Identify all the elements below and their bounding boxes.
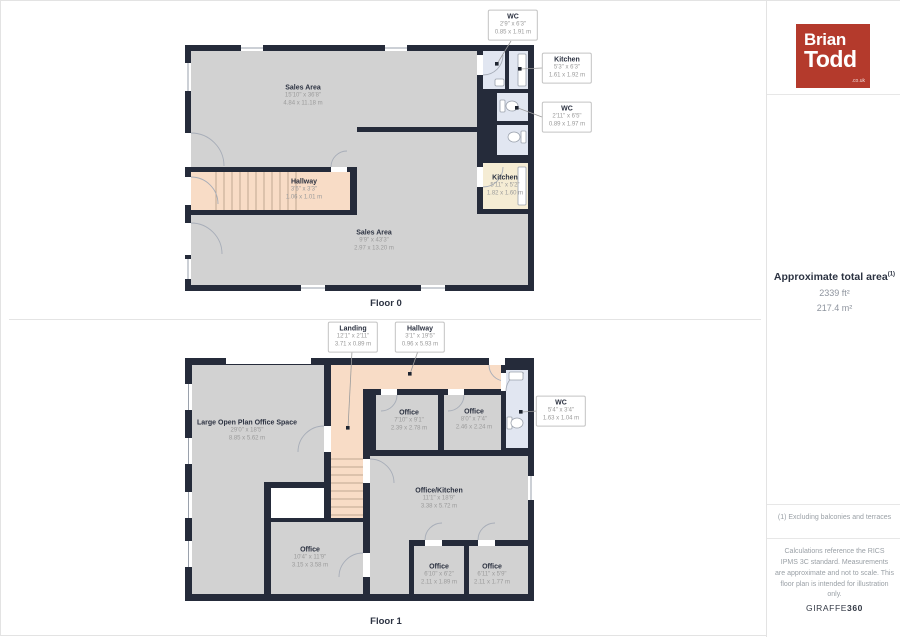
sidebar-divider-mid1	[767, 504, 900, 505]
callout-hallway-f1: Hallway 3'1" x 19'5" 0.96 x 5.93 m	[395, 322, 445, 353]
floor0-label: Floor 0	[370, 298, 402, 309]
room-dim-metric: 0.85 x 1.91 m	[495, 30, 531, 38]
room-dim-imperial: 9'9" x 43'3"	[354, 238, 394, 246]
room-name: Hallway	[402, 325, 438, 334]
room-label-office-kitchen: Office/Kitchen 11'1" x 18'9" 3.38 x 5.72…	[415, 487, 462, 512]
total-area-footnote-marker: (1)	[888, 272, 895, 278]
room-name: Office/Kitchen	[415, 487, 462, 496]
total-area-m: 217.4 m²	[767, 303, 900, 313]
room-name: WC	[543, 399, 579, 408]
room-dim-metric: 2.11 x 1.77 m	[474, 580, 510, 588]
room-name: Hallway	[286, 178, 322, 187]
room-dim-metric: 0.89 x 1.97 m	[549, 122, 585, 130]
room-dim-imperial: 6'11" x 5'9"	[474, 572, 510, 580]
room-name: Office	[456, 408, 492, 417]
room-name: Sales Area	[283, 84, 322, 93]
room-dim-imperial: 2'9" x 6'3"	[495, 22, 531, 30]
room-dim-imperial: 3'1" x 19'5"	[402, 334, 438, 342]
room-dim-metric: 2.46 x 2.24 m	[456, 425, 492, 433]
room-dim-metric: 2.97 x 13.20 m	[354, 246, 394, 254]
room-name: Office	[474, 563, 510, 572]
page: Sales Area 15'10" x 36'8" 4.84 x 11.18 m…	[0, 0, 900, 636]
room-label-office-b: Office 8'0" x 7'4" 2.46 x 2.24 m	[456, 408, 492, 433]
total-area-label: Approximate total area(1)	[767, 271, 900, 283]
room-name: Kitchen	[487, 174, 523, 183]
room-name: Office	[391, 409, 427, 418]
room-dim-metric: 1.82 x 1.60 m	[487, 191, 523, 199]
logo-suffix: .co.uk	[852, 78, 865, 84]
room-name: Office	[421, 563, 457, 572]
room-label-large-office: Large Open Plan Office Space 29'0" x 18'…	[197, 419, 297, 444]
room-dim-metric: 3.71 x 0.89 m	[335, 342, 371, 350]
room-dim-imperial: 2'11" x 6'5"	[549, 114, 585, 122]
room-dim-metric: 4.84 x 11.18 m	[283, 101, 322, 109]
callout-wc-top-f0: WC 2'9" x 6'3" 0.85 x 1.91 m	[488, 10, 538, 41]
total-area-label-text: Approximate total area	[774, 271, 888, 283]
room-name: Landing	[335, 325, 371, 334]
total-area-ft: 2339 ft²	[767, 288, 900, 298]
room-dim-metric: 8.85 x 5.62 m	[197, 436, 297, 444]
room-dim-metric: 3.15 x 3.58 m	[292, 563, 328, 571]
room-label-office-br: Office 6'11" x 5'9" 2.11 x 1.77 m	[474, 563, 510, 588]
room-dim-metric: 1.63 x 1.04 m	[543, 416, 579, 424]
room-dim-imperial: 5'4" x 3'4"	[543, 408, 579, 416]
room-dim-imperial: 8'0" x 7'4"	[456, 417, 492, 425]
brand-regular: GIRAFFE	[806, 603, 847, 613]
room-name: Office	[292, 546, 328, 555]
room-dim-metric: 3.38 x 5.72 m	[415, 504, 462, 512]
room-dim-imperial: 5'3" x 6'3"	[549, 65, 585, 73]
sidebar-divider-mid2	[767, 538, 900, 539]
room-dim-imperial: 15'10" x 36'8"	[283, 93, 322, 101]
callout-kitchen-small-f0: Kitchen 5'3" x 6'3" 1.61 x 1.92 m	[542, 53, 592, 84]
room-name: WC	[495, 13, 531, 22]
room-dim-metric: 2.39 x 2.78 m	[391, 426, 427, 434]
room-label-office-center: Office 10'4" x 11'9" 3.15 x 3.58 m	[292, 546, 328, 571]
room-label-sales-area-bottom: Sales Area 9'9" x 43'3" 2.97 x 13.20 m	[354, 229, 394, 254]
room-dim-imperial: 11'1" x 18'9"	[415, 496, 462, 504]
callout-wc-f1: WC 5'4" x 3'4" 1.63 x 1.04 m	[536, 396, 586, 427]
floor1-label: Floor 1	[370, 616, 402, 627]
disclaimer-text: Calculations reference the RICS IPMS 3C …	[775, 547, 894, 601]
room-dim-imperial: 29'0" x 18'5"	[197, 428, 297, 436]
room-dim-imperial: 3'6" x 3'3"	[286, 187, 322, 195]
room-label-office-a: Office 7'10" x 9'1" 2.39 x 2.78 m	[391, 409, 427, 434]
room-label-sales-area-top: Sales Area 15'10" x 36'8" 4.84 x 11.18 m	[283, 84, 322, 109]
brian-todd-logo: Brian Todd .co.uk	[796, 24, 870, 88]
room-name: WC	[549, 105, 585, 114]
room-dim-metric: 2.11 x 1.89 m	[421, 580, 457, 588]
sidebar-divider-top	[767, 94, 900, 95]
room-name: Kitchen	[549, 56, 585, 65]
callout-landing-f1: Landing 12'1" x 2'11" 3.71 x 0.89 m	[328, 322, 378, 353]
brand-bold: 360	[847, 603, 863, 613]
room-label-kitchen-f0: Kitchen 5'11" x 5'2" 1.82 x 1.60 m	[487, 174, 523, 199]
sidebar: Brian Todd .co.uk Approximate total area…	[766, 1, 900, 637]
giraffe360-brand: GIRAFFE360	[767, 603, 900, 613]
footnote-text: (1) Excluding balconies and terraces	[767, 514, 900, 521]
callout-wc-right-f0: WC 2'11" x 6'5" 0.89 x 1.97 m	[542, 102, 592, 133]
room-dim-imperial: 6'10" x 6'2"	[421, 572, 457, 580]
room-label-office-bl: Office 6'10" x 6'2" 2.11 x 1.89 m	[421, 563, 457, 588]
floor0-plan-graphic	[185, 41, 542, 291]
room-name: Sales Area	[354, 229, 394, 238]
floors-divider	[9, 319, 761, 320]
room-label-hallway-f0: Hallway 3'6" x 3'3" 1.06 x 1.01 m	[286, 178, 322, 203]
room-dim-metric: 0.96 x 5.93 m	[402, 342, 438, 350]
room-dim-imperial: 5'11" x 5'2"	[487, 183, 523, 191]
logo-line2: Todd	[804, 48, 870, 71]
room-dim-imperial: 7'10" x 9'1"	[391, 418, 427, 426]
room-dim-metric: 1.06 x 1.01 m	[286, 195, 322, 203]
total-area-block: Approximate total area(1) 2339 ft² 217.4…	[767, 271, 900, 313]
room-dim-imperial: 10'4" x 11'9"	[292, 555, 328, 563]
room-name: Large Open Plan Office Space	[197, 419, 297, 428]
room-dim-imperial: 12'1" x 2'11"	[335, 334, 371, 342]
room-dim-metric: 1.61 x 1.92 m	[549, 73, 585, 81]
